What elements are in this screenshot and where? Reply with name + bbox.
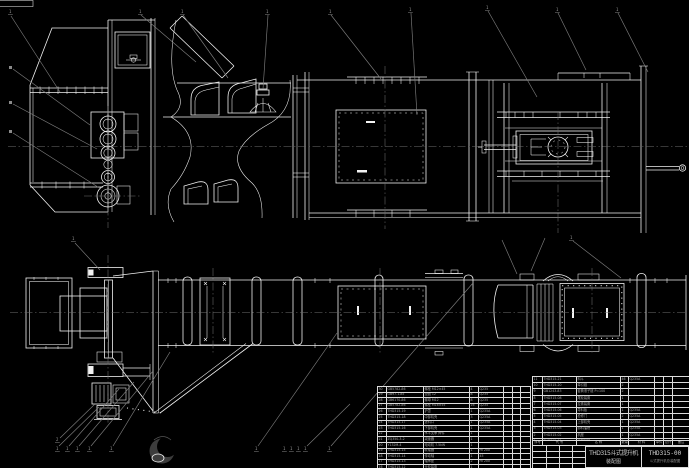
callout-number: 1 (139, 9, 142, 14)
title-block-number-cell: THD315-00 斗式提升机总装配图 (642, 445, 689, 468)
product-name: THD315斗式提升机 (589, 448, 638, 457)
bom-table-left: 30GB5782-86螺栓 M12×454Q23529GB97.1-85垫圈 1… (377, 386, 531, 468)
callout-number: 2 (56, 437, 59, 442)
drawing-number: THD315-00 (649, 450, 682, 457)
title-block: THD315斗式提升机 装配图 THD315-00 斗式提升机总装配图 (585, 445, 689, 468)
buckets-lower (184, 180, 238, 204)
callout-number: 1 (297, 446, 300, 451)
callout-number: 1 (304, 446, 307, 451)
callout-number: 1 (9, 9, 12, 14)
callout-number: 1 (283, 446, 286, 451)
buckets-upper (191, 79, 256, 115)
callout-number: 1 (66, 446, 69, 451)
callout-number: 1 (486, 5, 489, 10)
bolted-section (200, 278, 230, 345)
border-fragment (0, 1, 33, 7)
head-wheel-assembly (91, 112, 138, 207)
gearbox (92, 383, 129, 404)
crescent-blob (150, 436, 179, 464)
callout-number: 1 (328, 446, 331, 451)
title-block-sign-grid (532, 445, 586, 468)
bom-cell (533, 464, 547, 468)
drawing-number-subtitle: 斗式提升机总装配图 (650, 458, 681, 463)
callout-layer: 11111111111211111111111 (8, 5, 620, 451)
cad-drawing-page: 11111111111211111111111 30GB5782-86螺栓 M1… (0, 0, 689, 468)
callout-number: 1 (290, 446, 293, 451)
callout-number: 1 (266, 9, 269, 14)
bom-cell (547, 464, 560, 468)
title-block-product-cell: THD315斗式提升机 装配图 (585, 445, 642, 468)
feed-chute (170, 16, 234, 78)
bom-cell (560, 464, 573, 468)
doc-type: 装配图 (606, 458, 621, 465)
callout-number: 1 (329, 9, 332, 14)
callout-number: 1 (56, 446, 59, 451)
callout-number: 1 (570, 235, 573, 240)
callout-number: 1 (72, 236, 75, 241)
callout-number: 1 (181, 9, 184, 14)
callout-number: 1 (255, 446, 258, 451)
callout-number: 1 (76, 446, 79, 451)
tension-assembly (478, 83, 610, 213)
callout-number: 1 (88, 446, 91, 451)
inspection-door (115, 32, 150, 68)
bom-cell (573, 464, 586, 468)
bom-table-right: 11THD315-21料斗46Q235A10THD315-20牵引链29GB12… (532, 376, 689, 445)
callout-number: 1 (409, 7, 412, 12)
callout-number: 1 (110, 446, 113, 451)
callout-number: 1 (556, 7, 559, 12)
callout-number: 1 (616, 7, 619, 12)
top-view (0, 1, 687, 234)
